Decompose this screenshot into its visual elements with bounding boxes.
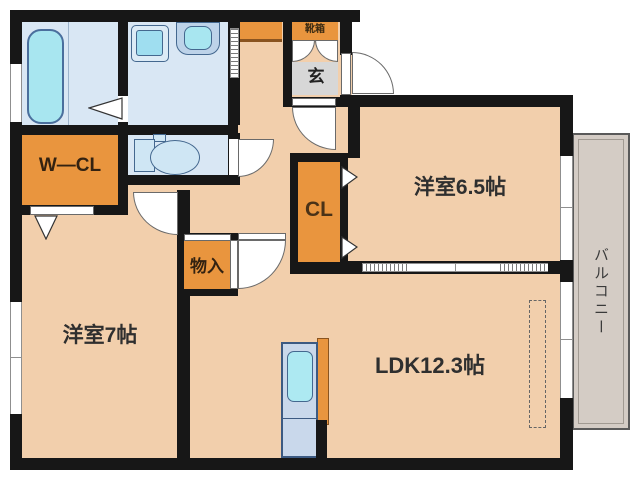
- storage-label: 物入: [182, 258, 232, 277]
- toilet-icon-bowl: [150, 140, 200, 175]
- kitchen-back-panel: [317, 338, 329, 425]
- washroom-sliding-door: [230, 28, 239, 78]
- partition-sliding-door-center: [455, 263, 456, 272]
- wcl-folding-door-icon: [34, 215, 58, 240]
- wall-wcl-right: [118, 133, 128, 215]
- ldk-balcony-window: [560, 282, 573, 398]
- closet-folding-door-icon-bottom: [341, 236, 358, 259]
- wcl-door-gap: [30, 206, 94, 215]
- partition-sliding-door-hatch-left: [362, 264, 410, 271]
- ldk-label: LDK12.3帖: [355, 354, 505, 378]
- bathroom-divider-line: [68, 22, 69, 125]
- wall-bedroom65-left-stub: [348, 107, 360, 158]
- vanity-sink-icon: [176, 22, 220, 55]
- bedroom7-window: [10, 302, 22, 414]
- bathroom-folding-door-icon: [88, 97, 123, 120]
- wall-top: [10, 10, 360, 22]
- bathroom-window: [10, 64, 22, 122]
- wall-entrance-left: [283, 10, 292, 107]
- entrance-label: 玄: [302, 68, 330, 87]
- bedroom65-window: [560, 156, 573, 260]
- balcony-label: バルコニー: [584, 212, 608, 372]
- wcl-label: W—CL: [30, 156, 110, 177]
- wall-bottom: [10, 458, 573, 470]
- shoebox-label: 靴箱: [292, 24, 338, 35]
- ldk-dashed-area: [529, 300, 546, 428]
- wall-bedroom65-top: [340, 95, 573, 107]
- wall-entrance-right: [340, 10, 352, 55]
- bathtub-icon: [27, 29, 64, 124]
- corridor-cabinet: [237, 20, 282, 42]
- closet-label: CL: [296, 198, 342, 221]
- bedroom7-label: 洋室7帖: [40, 324, 160, 347]
- ldk-door-gap: [238, 233, 286, 240]
- bedroom65-label: 洋室6.5帖: [380, 176, 540, 199]
- washing-machine-icon: [131, 25, 169, 62]
- kitchen-sink-icon: [287, 351, 313, 402]
- wall-bedroom7-right: [177, 190, 190, 458]
- hall-door-gap: [292, 98, 336, 106]
- front-door-leaf: [341, 53, 351, 95]
- floor-plan: バルコニー: [0, 0, 640, 480]
- kitchen-wall-stub: [316, 420, 327, 458]
- wall-toilet-bottom: [118, 175, 238, 185]
- closet-folding-door-icon-top: [341, 166, 358, 189]
- partition-sliding-door-hatch-right: [500, 264, 548, 271]
- storage-door: [184, 234, 231, 241]
